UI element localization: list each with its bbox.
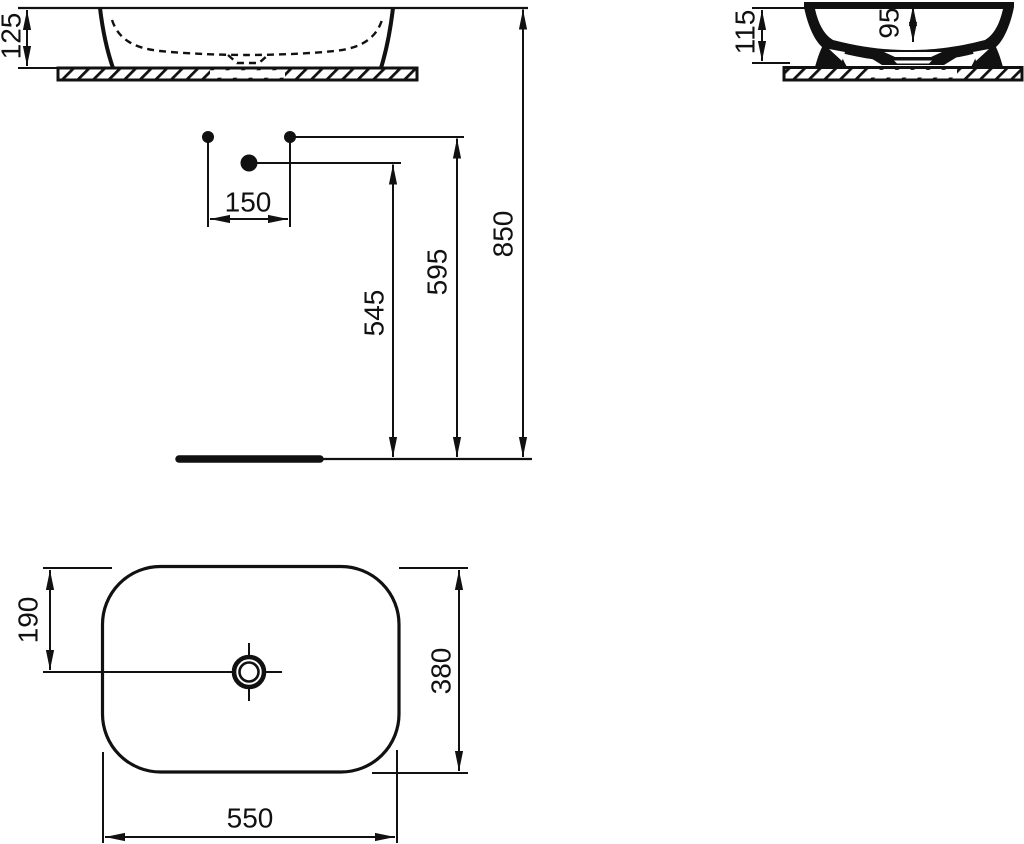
dim-125-label: 125: [0, 13, 27, 60]
front-drain-dashed: [228, 55, 268, 63]
side-countertop-cutout: [869, 70, 957, 78]
plan-view: 190 380 550: [13, 567, 469, 844]
front-countertop-cutout: [210, 70, 285, 77]
front-basin-left-wall: [100, 8, 113, 68]
technical-drawing-canvas: 125 115 95: [0, 0, 1024, 844]
dim-190-label: 190: [13, 597, 44, 644]
dim-550-label: 550: [227, 803, 274, 834]
dim-115-label: 115: [730, 10, 761, 55]
dim-380-label: 380: [426, 648, 457, 695]
washbasin-dimension-drawing: 125 115 95: [0, 0, 1024, 844]
front-basin-right-wall: [381, 8, 393, 68]
dim-595-label: 595: [422, 249, 453, 296]
side-drain-slot-lower: [894, 61, 932, 64]
dim-545-label: 545: [359, 290, 390, 337]
front-basin-inner-profile-dashed: [112, 20, 382, 55]
side-view: 115 95: [730, 2, 1023, 80]
front-view: 125: [0, 8, 528, 80]
dim-150-label: 150: [225, 187, 272, 218]
dim-850-label: 850: [488, 211, 519, 258]
dim-95-label: 95: [874, 7, 905, 38]
